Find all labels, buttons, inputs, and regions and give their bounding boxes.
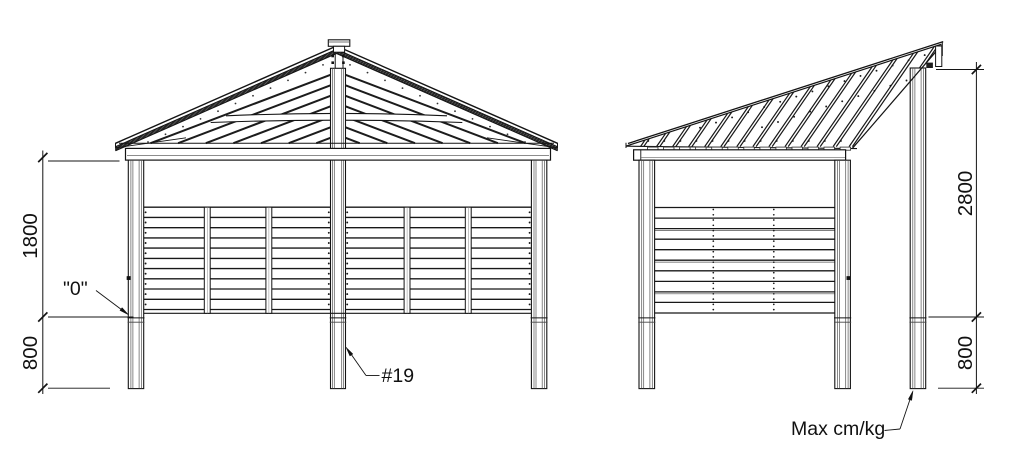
svg-text:2800: 2800 — [954, 171, 977, 217]
svg-text:"0": "0" — [63, 278, 88, 300]
svg-text:800: 800 — [954, 336, 977, 370]
svg-text:Max cm/kg: Max cm/kg — [791, 418, 885, 440]
svg-text:800: 800 — [19, 336, 42, 370]
svg-text:1800: 1800 — [19, 213, 42, 259]
svg-text:#19: #19 — [382, 365, 415, 387]
